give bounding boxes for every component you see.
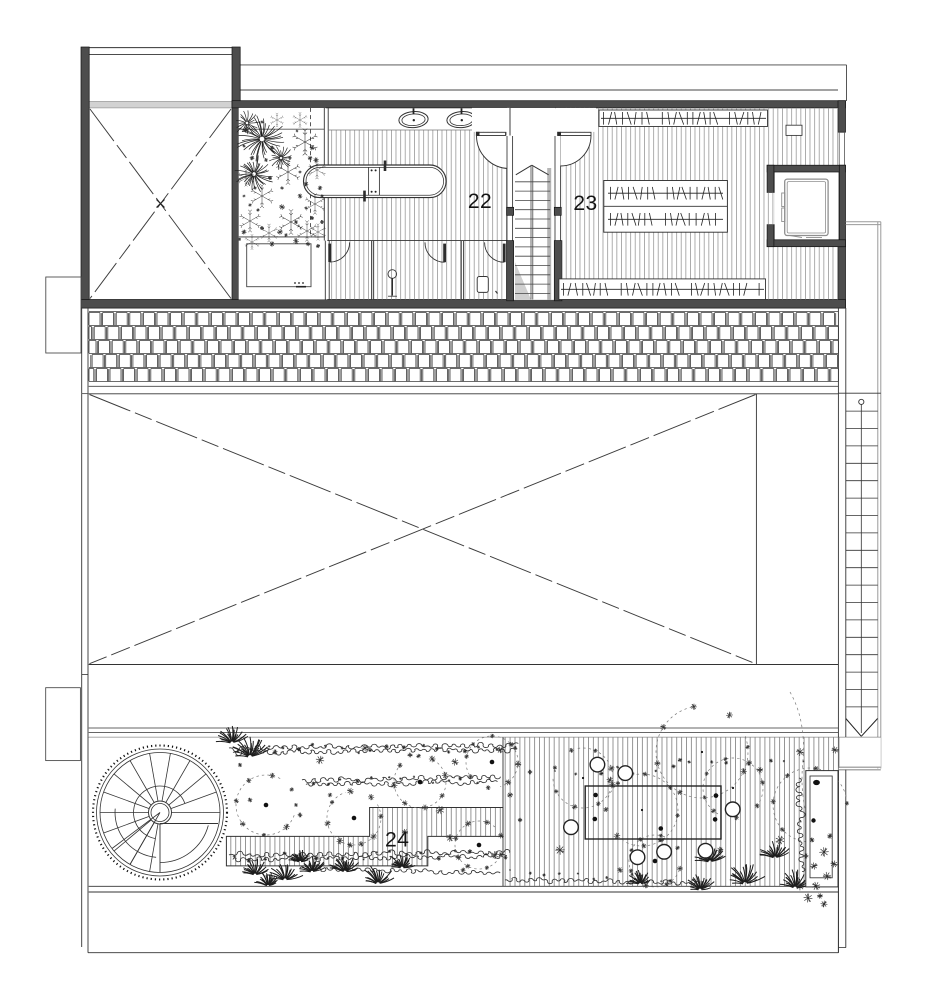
svg-text:22: 22 xyxy=(468,190,492,213)
svg-text:24: 24 xyxy=(385,829,409,852)
svg-text:23: 23 xyxy=(573,192,597,215)
